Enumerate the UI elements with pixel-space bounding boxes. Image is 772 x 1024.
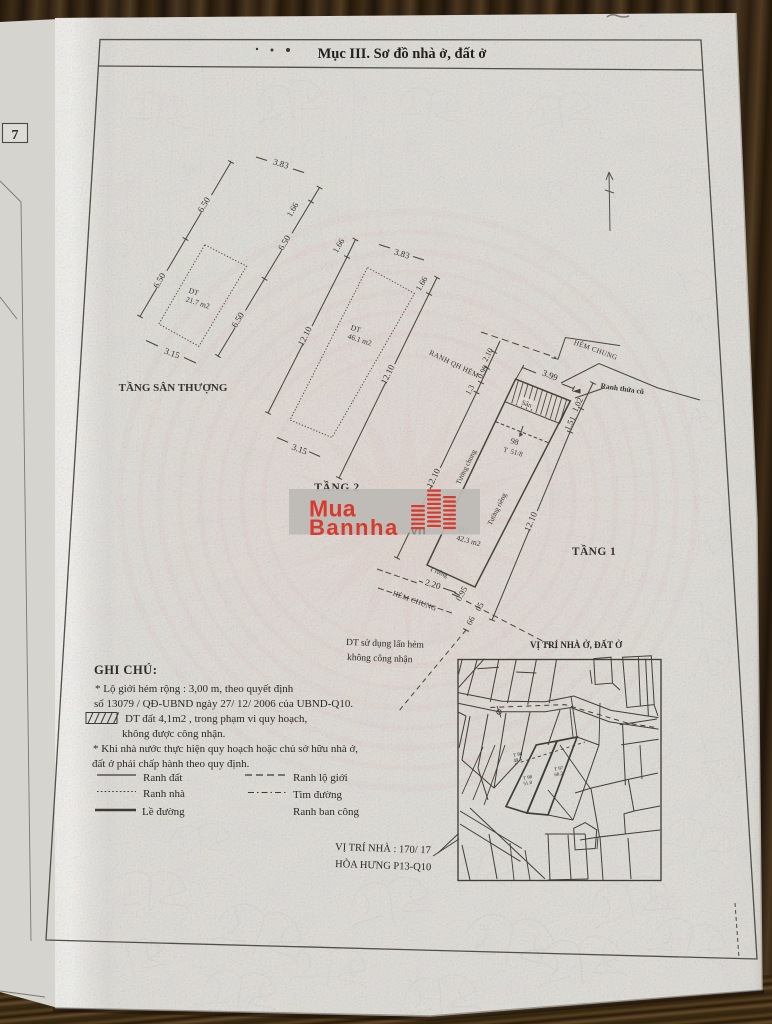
- svg-text:Tim đường: Tim đường: [293, 789, 342, 801]
- svg-text:Ranh ban công: Ranh ban công: [293, 806, 359, 818]
- svg-text:Lề đường: Lề đường: [142, 806, 185, 818]
- svg-text:* Lộ giới hẻm rộng : 3,00 m, t: * Lộ giới hẻm rộng : 3,00 m, theo quyết …: [95, 683, 294, 695]
- svg-text:không được công nhận.: không được công nhận.: [122, 728, 226, 740]
- svg-text:VỊ TRÍ NHÀ Ở, ĐẤT Ở: VỊ TRÍ NHÀ Ở, ĐẤT Ở: [530, 640, 623, 650]
- svg-text:7: 7: [12, 128, 19, 143]
- svg-text:TẦNG SÂN THƯỢNG: TẦNG SÂN THƯỢNG: [119, 381, 228, 394]
- svg-text:* Khi nhà nước thực hiện quy h: * Khi nhà nước thực hiện quy hoạch hoặc …: [93, 743, 358, 755]
- svg-text:số 13079 / QĐ-UBND ngày 27/ 12: số 13079 / QĐ-UBND ngày 27/ 12/ 2006 của…: [94, 698, 353, 710]
- svg-text:đất ở phải chấp hành theo quy: đất ở phải chấp hành theo quy định.: [92, 758, 250, 770]
- svg-text:Mục III. Sơ đồ nhà ở, đất ở: Mục III. Sơ đồ nhà ở, đất ở: [318, 46, 487, 62]
- svg-text:GHI CHÚ:: GHI CHÚ:: [94, 663, 157, 677]
- svg-text:DT đất 4,1m2 , trong phạm vi: DT đất 4,1m2 , trong phạm vi quy hoạch,: [125, 713, 307, 725]
- svg-text:TẦNG 1: TẦNG 1: [572, 543, 616, 558]
- svg-text:Bannha: Bannha: [309, 515, 399, 540]
- svg-text:Ranh đất: Ranh đất: [143, 772, 182, 784]
- svg-text:Ranh lộ giới: Ranh lộ giới: [293, 772, 348, 784]
- svg-text:Ranh nhà: Ranh nhà: [143, 788, 185, 800]
